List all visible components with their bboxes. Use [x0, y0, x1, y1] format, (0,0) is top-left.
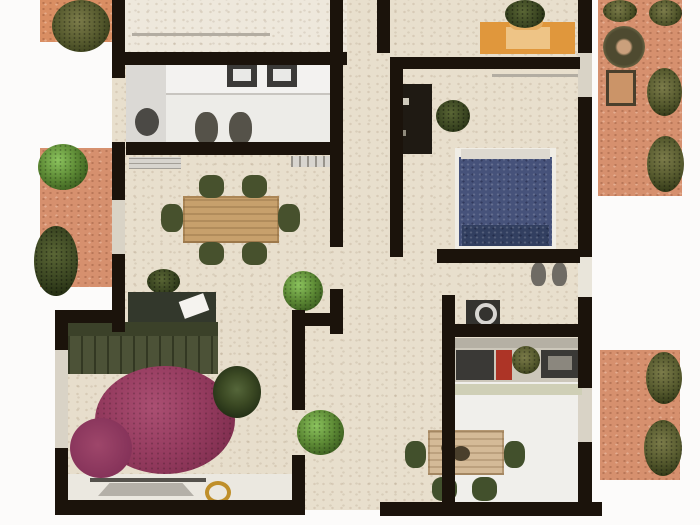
balcony-right-plant-3 — [647, 136, 684, 192]
kitchen-oven-inner — [273, 69, 291, 81]
wall-top-left-vertical — [112, 0, 125, 78]
kitchen-cooktop-inner — [233, 69, 251, 81]
balcony-right-plant-top — [603, 0, 637, 22]
window-sill-living-left — [55, 348, 68, 450]
balcony-left-plant-top — [38, 144, 88, 190]
wall-bottom-left — [55, 500, 305, 515]
balcony-br-plant-2 — [644, 420, 682, 476]
wall-bottom-right — [380, 502, 602, 516]
wall-left-upper — [112, 142, 125, 200]
kitchen-sink-round — [135, 108, 159, 136]
window-line-bedroom — [492, 74, 578, 77]
dining-chair-right — [278, 204, 300, 232]
kitchen2-oven-red — [496, 350, 512, 380]
balcony-right-plant-1 — [649, 0, 682, 26]
kitchen2-chair-left — [405, 441, 426, 468]
wall-right-c — [578, 297, 592, 388]
balcony-br-plant-1 — [646, 352, 682, 404]
tv-screen-line — [90, 478, 206, 482]
balcony-left-plant-bottom — [34, 226, 78, 296]
dining-chair-left — [161, 204, 183, 232]
hall-plant-bottom — [297, 410, 344, 455]
wall-kitchen2-top — [442, 324, 582, 337]
wall-bedroom-bottom — [437, 249, 580, 263]
washing-machine-door — [475, 303, 497, 325]
apartment-floor-plan — [0, 0, 700, 525]
wall-dining-right-a — [330, 155, 343, 247]
kitchen2-chair-bottom-2 — [472, 477, 497, 501]
kitchen2-shelf-strip — [455, 338, 582, 348]
kitchen2-mat — [455, 384, 582, 395]
wall-bedroom-left — [390, 57, 403, 257]
wall-right-a — [578, 0, 592, 53]
wall-right-b — [578, 97, 592, 257]
wall-kitchen-bottom — [126, 142, 343, 155]
wall-right-d — [578, 442, 592, 510]
purple-rug-small — [70, 418, 132, 478]
slipper-2 — [552, 262, 567, 286]
dining-chair-bottom-2 — [242, 242, 267, 265]
tv-stand — [98, 483, 194, 496]
dining-plant — [147, 269, 180, 294]
balcony-chair — [606, 70, 636, 106]
wall-living-right-b — [292, 455, 305, 505]
floor-top-terrace-strip — [125, 0, 347, 52]
window-sill-right-1 — [578, 53, 592, 97]
balcony-wreath-table — [603, 26, 645, 68]
kitchen2-sink-inner — [548, 356, 572, 370]
window-sill-left-balcony — [112, 198, 125, 256]
balcony-right-plant-2 — [647, 68, 682, 116]
dining-chair-bottom-1 — [199, 242, 224, 265]
wall-kitchen-top — [112, 52, 347, 65]
wall-living-left-a — [55, 310, 68, 350]
bedroom-plant — [436, 100, 470, 132]
slipper-1 — [531, 262, 546, 286]
wall-dining-right-b — [330, 289, 343, 334]
bed-fold — [462, 225, 549, 246]
living-round-chair — [213, 366, 261, 418]
kitchen2-chair-right — [504, 441, 525, 468]
kitchen-stool-2 — [229, 112, 252, 145]
kitchen-stool-1 — [195, 112, 218, 145]
dining-table — [183, 196, 279, 243]
kitchen2-counter-plant — [512, 346, 540, 374]
dining-chair-top-2 — [242, 175, 267, 198]
shelf-dining — [129, 157, 181, 169]
wall-deskroom-left — [377, 0, 390, 53]
desk-plant — [505, 0, 545, 28]
window-sill-right-3 — [578, 388, 592, 442]
balcony-tl-plant — [52, 0, 110, 52]
window-sill-right-2 — [578, 255, 592, 297]
kitchen-counter-edge — [166, 93, 330, 95]
bed-pillow-strip — [461, 149, 550, 159]
dining-chair-top-1 — [199, 175, 224, 198]
window-line-top-terrace — [132, 33, 270, 36]
wall-kitchen-right — [330, 52, 343, 144]
kitchen2-appliance-left — [456, 350, 494, 380]
desk-inlay — [506, 27, 550, 49]
wall-hall-top-stub — [330, 0, 343, 52]
wall-bedroom-top — [390, 57, 580, 69]
dining-corner-plant — [283, 271, 323, 311]
